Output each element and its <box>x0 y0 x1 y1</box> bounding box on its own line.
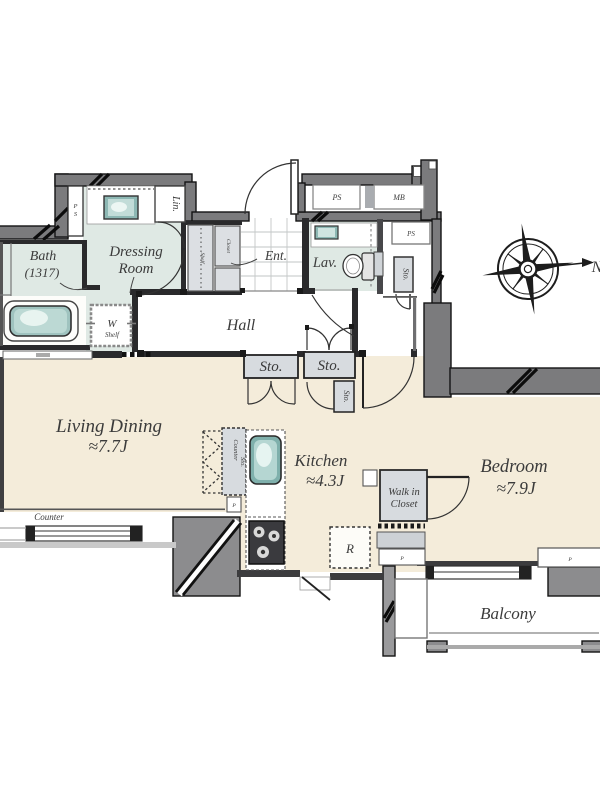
svg-text:P: P <box>399 556 404 562</box>
svg-text:Counter: Counter <box>34 512 64 522</box>
svg-text:Walk in: Walk in <box>388 487 419 498</box>
svg-text:MB: MB <box>392 193 405 202</box>
svg-text:Closet: Closet <box>225 239 231 254</box>
svg-text:Shelf: Shelf <box>199 253 206 265</box>
svg-text:N: N <box>591 259 600 276</box>
svg-text:PS: PS <box>332 193 342 202</box>
svg-text:Sto.: Sto. <box>318 358 341 374</box>
svg-text:P: P <box>231 503 236 509</box>
svg-text:P: P <box>567 557 572 563</box>
svg-text:Sto.: Sto. <box>402 268 411 280</box>
svg-text:Lin.: Lin. <box>170 195 181 212</box>
svg-text:Counter: Counter <box>232 439 239 461</box>
svg-text:Closet: Closet <box>391 499 419 510</box>
svg-text:PS: PS <box>406 230 415 238</box>
svg-text:(1317): (1317) <box>25 265 60 280</box>
svg-text:≈4.3J: ≈4.3J <box>306 471 346 490</box>
svg-text:Ent.: Ent. <box>264 248 287 263</box>
svg-text:Kitchen: Kitchen <box>294 451 348 470</box>
svg-text:Room: Room <box>118 261 154 277</box>
svg-text:R: R <box>345 541 354 556</box>
svg-text:W: W <box>107 318 117 330</box>
svg-text:P: P <box>73 203 78 210</box>
svg-text:Hall: Hall <box>226 317 256 334</box>
svg-text:Bedroom: Bedroom <box>480 457 547 477</box>
svg-text:≈7.7J: ≈7.7J <box>88 436 128 456</box>
svg-text:Lav.: Lav. <box>312 255 337 271</box>
svg-text:Sto.: Sto. <box>260 359 283 375</box>
svg-text:Dressing: Dressing <box>108 244 163 260</box>
svg-text:Living Dining: Living Dining <box>55 416 162 437</box>
svg-text:≈7.9J: ≈7.9J <box>496 478 536 498</box>
svg-text:Bath: Bath <box>30 249 56 264</box>
svg-text:Sto.: Sto. <box>239 457 246 467</box>
svg-text:Balcony: Balcony <box>480 604 536 623</box>
svg-text:Shelf: Shelf <box>105 331 120 339</box>
svg-text:Sto.: Sto. <box>342 390 351 402</box>
